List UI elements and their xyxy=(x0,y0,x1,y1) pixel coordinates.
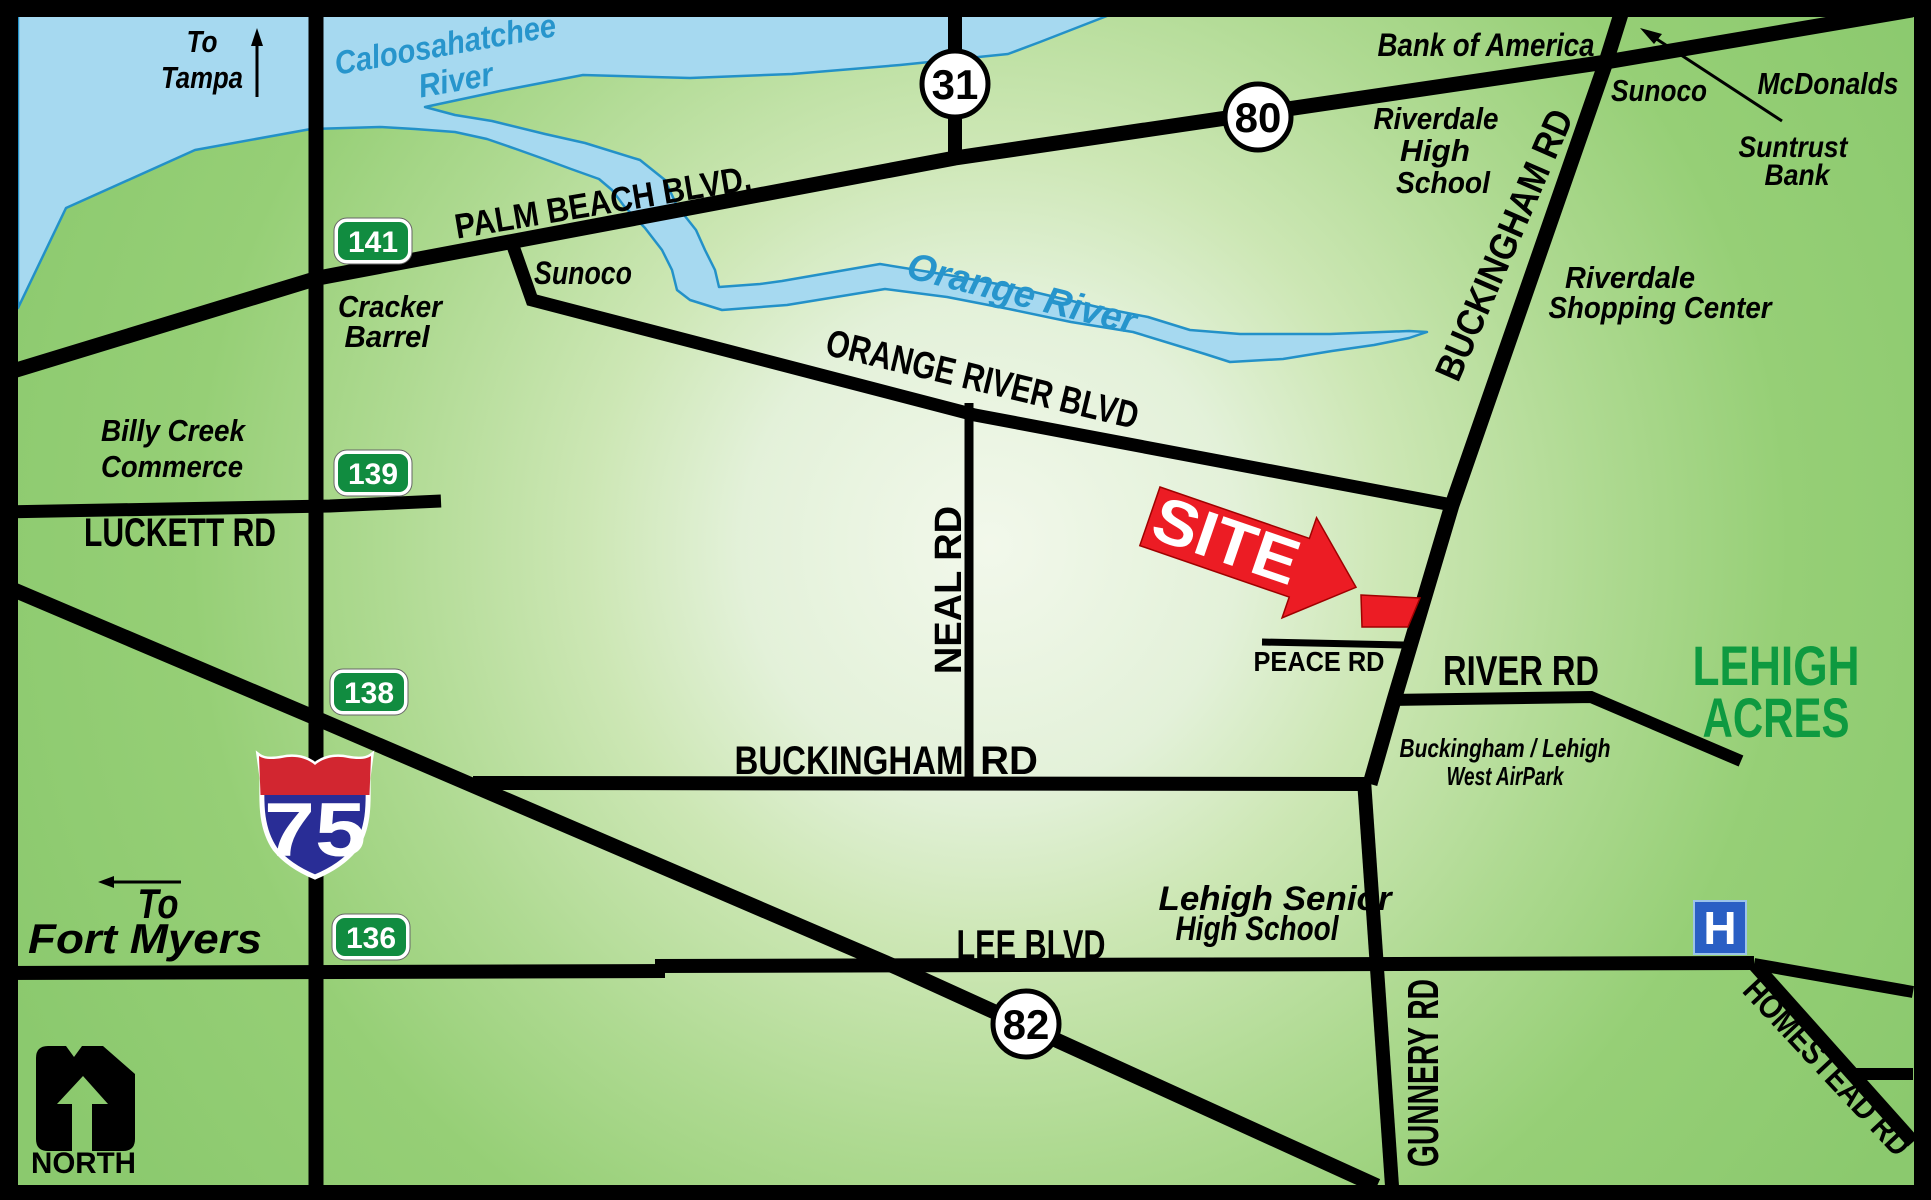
svg-text:Shopping Center: Shopping Center xyxy=(1549,290,1774,325)
svg-text:75: 75 xyxy=(264,788,366,873)
svg-text:H: H xyxy=(1703,902,1736,954)
svg-text:Commerce: Commerce xyxy=(101,449,243,484)
svg-text:Buckingham / Lehigh: Buckingham / Lehigh xyxy=(1400,733,1611,763)
svg-text:West AirPark: West AirPark xyxy=(1447,761,1565,791)
svg-text:Fort Myers: Fort Myers xyxy=(28,915,262,962)
svg-text:Bank of America: Bank of America xyxy=(1378,27,1595,63)
svg-text:31: 31 xyxy=(932,61,979,108)
svg-text:High School: High School xyxy=(1176,910,1340,948)
svg-text:136: 136 xyxy=(346,922,396,955)
svg-text:To: To xyxy=(187,24,218,59)
svg-text:LUCKETT RD: LUCKETT RD xyxy=(84,511,276,555)
svg-text:High: High xyxy=(1400,133,1470,168)
svg-text:RD: RD xyxy=(980,739,1038,783)
svg-text:RIVER RD: RIVER RD xyxy=(1443,647,1599,694)
svg-text:NORTH: NORTH xyxy=(31,1147,136,1180)
svg-text:PEACE RD: PEACE RD xyxy=(1254,646,1385,677)
svg-text:McDonalds: McDonalds xyxy=(1758,66,1899,101)
svg-text:141: 141 xyxy=(348,226,398,259)
svg-text:80: 80 xyxy=(1235,94,1282,141)
svg-text:82: 82 xyxy=(1003,1001,1050,1048)
svg-text:138: 138 xyxy=(344,677,394,710)
svg-text:139: 139 xyxy=(348,458,398,491)
svg-text:Bank: Bank xyxy=(1765,159,1831,192)
svg-text:ACRES: ACRES xyxy=(1703,686,1850,749)
svg-text:Barrel: Barrel xyxy=(345,319,431,354)
svg-text:School: School xyxy=(1396,165,1491,200)
svg-text:Billy Creek: Billy Creek xyxy=(101,413,247,448)
svg-text:Tampa: Tampa xyxy=(161,60,243,95)
svg-text:NEAL RD: NEAL RD xyxy=(928,506,970,674)
svg-text:Sunoco: Sunoco xyxy=(1611,73,1707,108)
svg-text:GUNNERY RD: GUNNERY RD xyxy=(1399,979,1448,1167)
svg-text:Riverdale: Riverdale xyxy=(1374,101,1499,136)
svg-text:BUCKINGHAM: BUCKINGHAM xyxy=(735,739,964,783)
svg-text:LEE BLVD: LEE BLVD xyxy=(957,921,1106,968)
svg-text:Sunoco: Sunoco xyxy=(534,255,632,291)
